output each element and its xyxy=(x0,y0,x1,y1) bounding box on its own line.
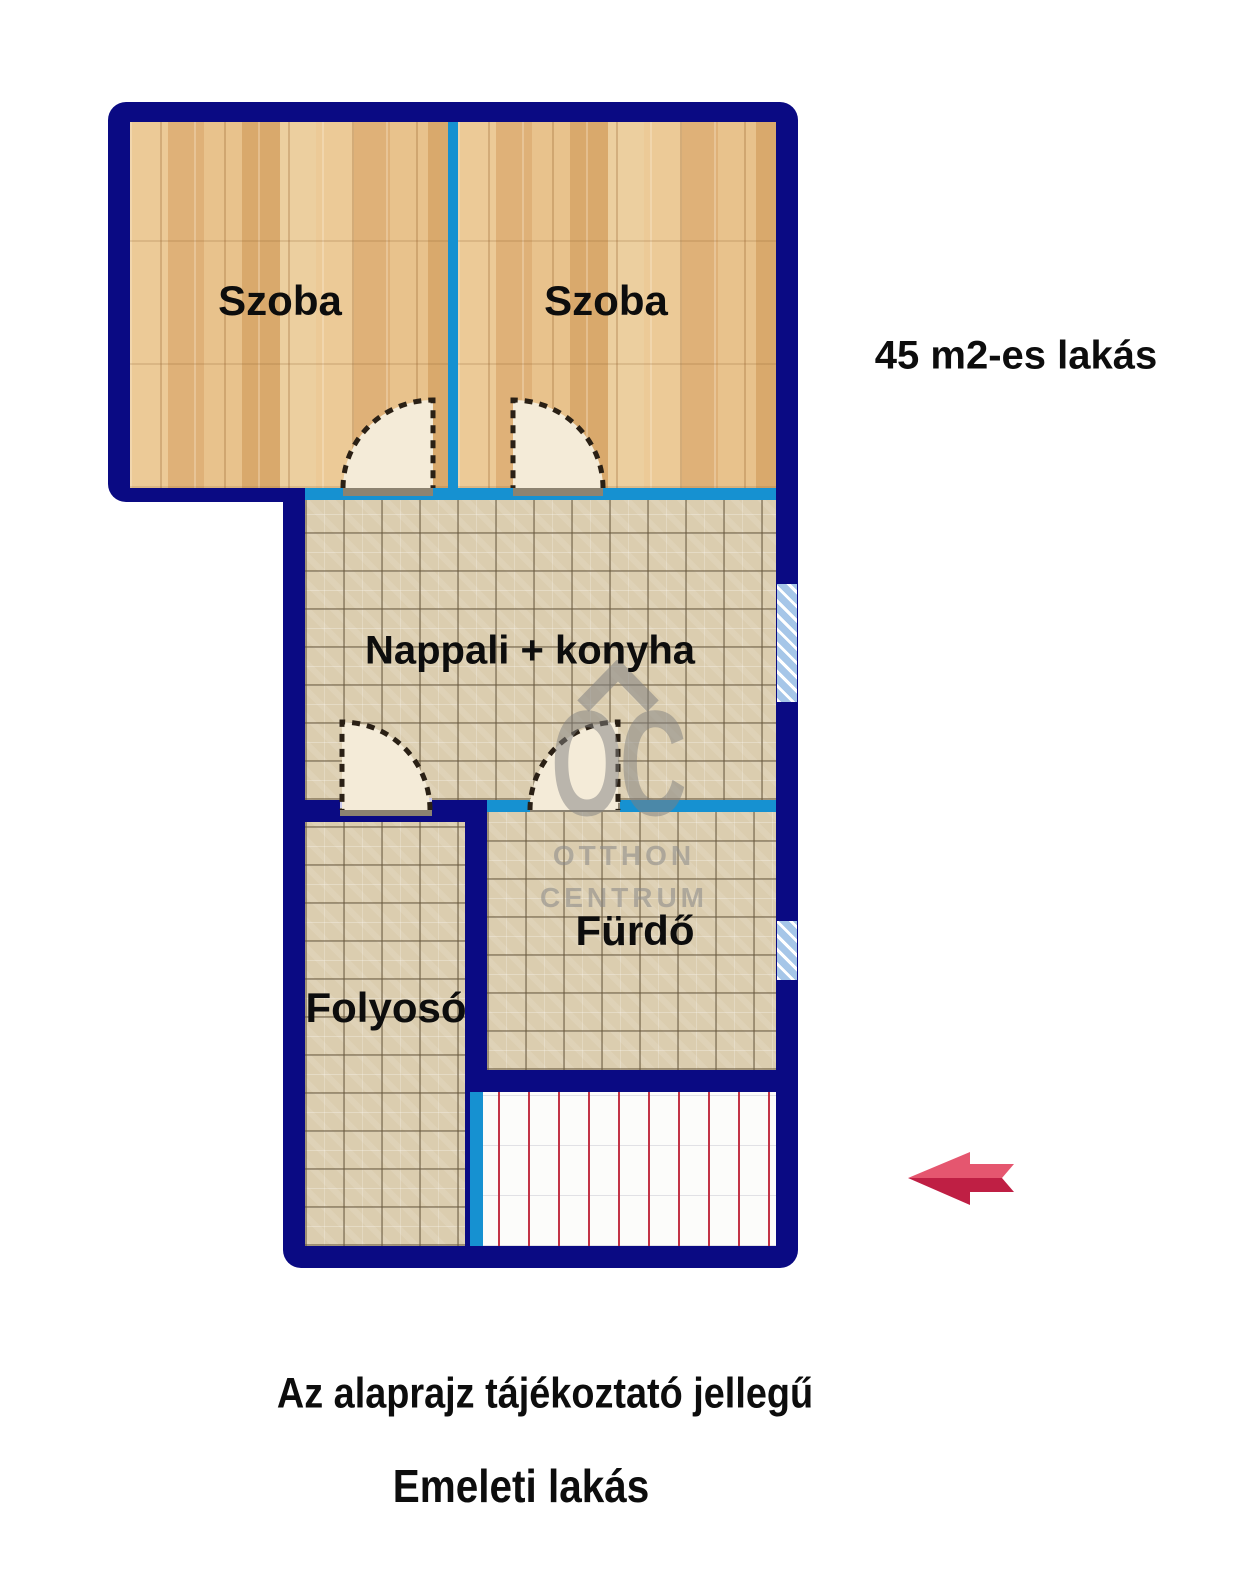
floor-title: Emeleti lakás xyxy=(393,1459,650,1513)
staircase xyxy=(483,1092,776,1246)
room-label-furdo: Fürdő xyxy=(576,907,695,955)
apartment-area-title: 45 m2-es lakás xyxy=(875,334,1157,379)
partition-wall-nappali-bottom-left xyxy=(487,800,530,812)
partition-wall-stairs xyxy=(470,1092,483,1246)
window-bathroom xyxy=(777,921,797,980)
room-label-szoba-right: Szoba xyxy=(544,277,668,325)
room-label-folyoso: Folyosó xyxy=(305,984,466,1032)
window-living-room xyxy=(777,584,797,702)
partition-wall-between-rooms xyxy=(448,122,458,488)
room-label-szoba-left: Szoba xyxy=(218,277,342,325)
room-label-nappali: Nappali + konyha xyxy=(365,629,695,674)
disclaimer-text: Az alaprajz tájékoztató jellegű xyxy=(277,1370,813,1419)
partition-wall-szoba-bottom xyxy=(305,488,776,500)
watermark-line1: OTTHON xyxy=(553,840,695,872)
watermark-logo: OC xyxy=(551,688,683,838)
floorplan-canvas: OC OTTHON CENTRUM Szoba Szoba 45 m2-es l… xyxy=(0,0,1240,1580)
room-folyoso-floor xyxy=(305,822,465,1246)
arrow-left-icon xyxy=(908,1152,1014,1205)
